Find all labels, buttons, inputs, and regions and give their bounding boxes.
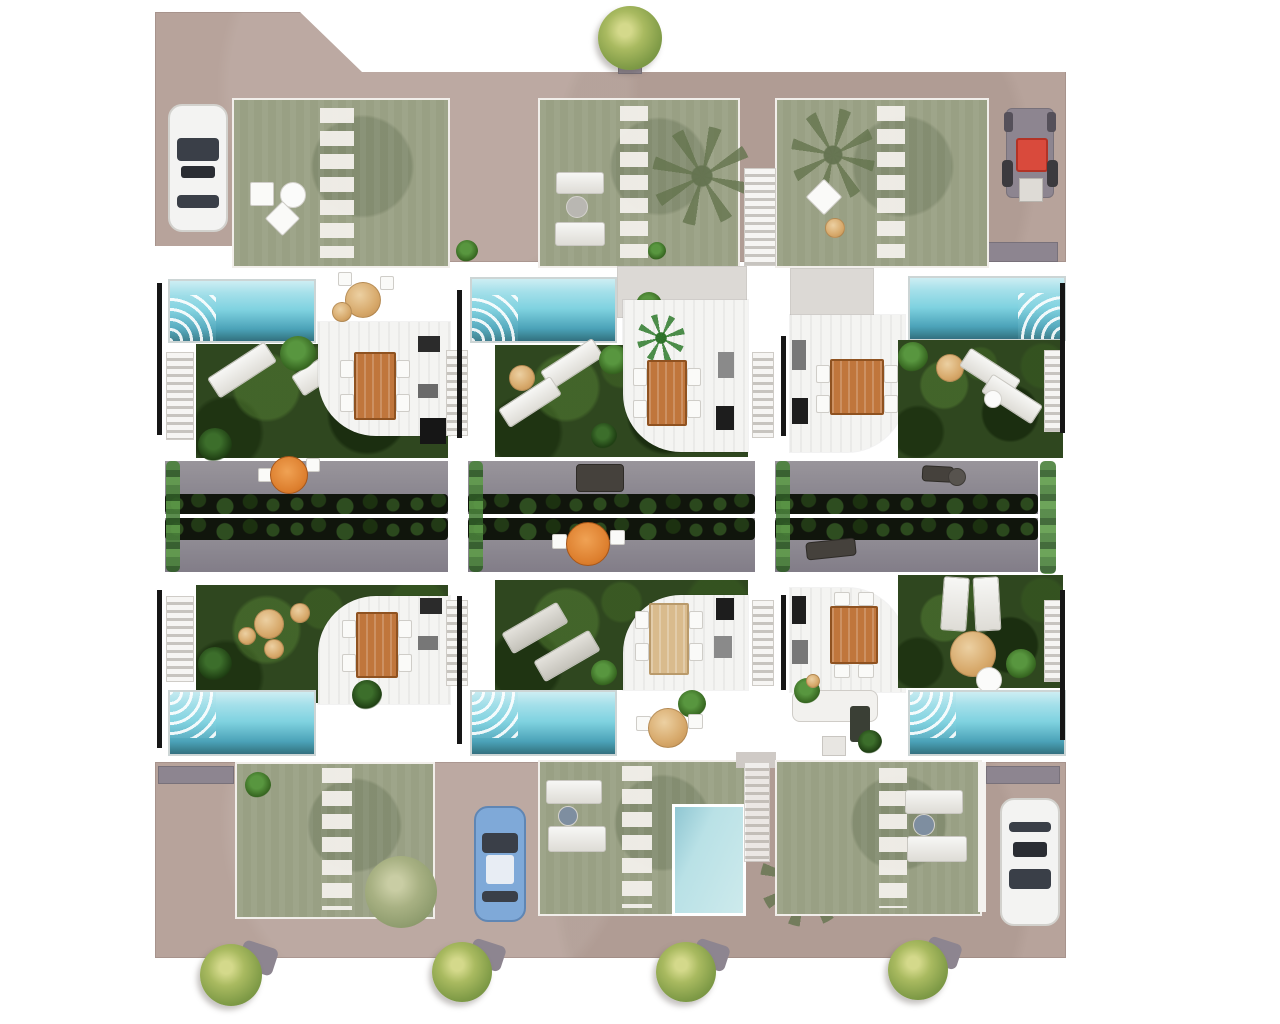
dining-table bbox=[649, 603, 689, 675]
chair bbox=[633, 400, 647, 418]
chair bbox=[687, 368, 701, 386]
boundary-wall bbox=[1060, 283, 1065, 433]
kitchen-block bbox=[418, 384, 438, 398]
white-car-bottom bbox=[1000, 798, 1060, 926]
chair bbox=[689, 611, 703, 629]
planter-strip bbox=[469, 461, 483, 572]
tractor-implement bbox=[1019, 178, 1043, 202]
roof-garden-plot-5 bbox=[538, 760, 746, 916]
sun-lounger bbox=[546, 780, 602, 804]
roof-terrace-lower-2 bbox=[468, 518, 755, 572]
chair bbox=[635, 611, 649, 629]
pouf-seat bbox=[264, 639, 284, 659]
kitchen-block bbox=[420, 598, 442, 614]
stepping-stones-path bbox=[322, 768, 352, 910]
stepping-stones-path bbox=[620, 106, 648, 258]
tractor bbox=[1000, 98, 1060, 208]
tree-top bbox=[598, 6, 662, 70]
chair bbox=[884, 395, 898, 413]
dining-table bbox=[356, 612, 398, 678]
car-windshield bbox=[1009, 869, 1052, 889]
street-tree bbox=[200, 944, 262, 1006]
roof-garden-plot-4 bbox=[235, 762, 435, 919]
kitchen-block bbox=[418, 336, 440, 352]
tractor-cab bbox=[1016, 138, 1048, 172]
dining-table bbox=[830, 606, 878, 664]
outdoor-sofa bbox=[576, 464, 624, 492]
party-wall bbox=[457, 290, 462, 438]
kitchen-block bbox=[792, 340, 806, 370]
entry-stairs bbox=[166, 352, 194, 440]
patio-plant bbox=[352, 680, 382, 710]
roof-garden-plot-3 bbox=[775, 98, 989, 268]
chair bbox=[834, 664, 850, 678]
kitchen-block bbox=[418, 636, 438, 650]
palm-tree bbox=[652, 126, 752, 226]
sun-lounger bbox=[207, 341, 277, 398]
sun-lounger bbox=[555, 222, 605, 246]
pool-steps bbox=[472, 295, 518, 341]
white-car-top bbox=[168, 104, 228, 232]
entry-stairs bbox=[166, 596, 194, 682]
kitchen-block bbox=[420, 418, 446, 444]
garden-plant bbox=[591, 660, 617, 686]
patio-plant bbox=[858, 730, 882, 754]
chair bbox=[610, 530, 625, 545]
garden-plant bbox=[1006, 649, 1036, 679]
chair bbox=[396, 394, 410, 412]
tractor-wheel bbox=[1002, 160, 1013, 187]
car-rear-window bbox=[177, 195, 220, 207]
kitchen-block bbox=[792, 398, 808, 424]
villa-4-pool bbox=[168, 690, 316, 756]
pouf-seat bbox=[238, 627, 256, 645]
chair bbox=[398, 620, 412, 638]
street-tree bbox=[656, 942, 716, 1002]
car-sunroof bbox=[1013, 842, 1047, 857]
sun-lounger bbox=[973, 576, 1002, 631]
kitchen-block bbox=[792, 640, 808, 664]
roof-garden-plot-6 bbox=[775, 760, 982, 916]
garden-tree bbox=[365, 856, 437, 928]
garden-plant bbox=[898, 342, 928, 372]
roof-terrace-lower-1 bbox=[165, 518, 448, 572]
kitchen-block bbox=[792, 596, 806, 624]
pouf-seat bbox=[290, 603, 310, 623]
chair bbox=[338, 272, 352, 286]
round-table bbox=[936, 354, 964, 382]
kitchen-block bbox=[716, 598, 734, 620]
chair bbox=[816, 395, 830, 413]
villa-3-pool bbox=[908, 276, 1066, 341]
chair bbox=[552, 534, 567, 549]
car-windshield bbox=[482, 833, 518, 853]
side-patio bbox=[790, 268, 874, 318]
dining-table bbox=[354, 352, 396, 420]
patio-seat bbox=[250, 182, 274, 206]
car-windshield bbox=[177, 138, 220, 160]
chair bbox=[688, 714, 703, 729]
hedge bbox=[165, 494, 448, 514]
sun-lounger bbox=[548, 826, 606, 852]
small-pool bbox=[672, 804, 746, 916]
sun-lounger bbox=[907, 836, 967, 862]
roof-garden-plot-2 bbox=[538, 98, 740, 268]
boundary-wall bbox=[157, 590, 162, 748]
tractor-wheel bbox=[1047, 160, 1058, 187]
round-table bbox=[825, 218, 845, 238]
dining-table bbox=[830, 359, 884, 415]
villa-2-pool bbox=[470, 277, 617, 343]
stepping-stones-path bbox=[879, 768, 907, 908]
flower-pot bbox=[806, 674, 820, 688]
storage-roof-left bbox=[158, 766, 234, 784]
stepping-stones-path bbox=[877, 106, 905, 258]
chair bbox=[858, 592, 874, 606]
terrace-palm-plant bbox=[637, 314, 685, 362]
pouf-seat bbox=[254, 609, 284, 639]
chair bbox=[342, 620, 356, 638]
storage-roof-right bbox=[986, 766, 1060, 784]
sun-lounger bbox=[905, 790, 963, 814]
parasol-table bbox=[566, 522, 610, 566]
stepping-stones-path bbox=[320, 108, 354, 258]
villa-3-garden bbox=[898, 340, 1063, 458]
parasol-table bbox=[270, 456, 308, 494]
party-wall bbox=[781, 595, 786, 690]
bush bbox=[648, 242, 666, 260]
manhole bbox=[948, 468, 966, 486]
kitchen-block bbox=[718, 352, 734, 378]
sun-lounger bbox=[556, 172, 604, 194]
hedge bbox=[775, 518, 1038, 540]
car-roof bbox=[486, 855, 515, 884]
car-sunroof bbox=[181, 166, 215, 178]
chair bbox=[816, 365, 830, 383]
villa-5-pool bbox=[470, 690, 617, 756]
small-table bbox=[822, 736, 846, 756]
planter-strip bbox=[166, 461, 180, 572]
hedge bbox=[165, 518, 448, 540]
chair bbox=[380, 276, 394, 290]
paved-patch-top-right bbox=[988, 242, 1058, 262]
chair bbox=[342, 654, 356, 672]
villa-6-garden bbox=[898, 575, 1063, 688]
chair bbox=[398, 654, 412, 672]
chair bbox=[396, 360, 410, 378]
roof-garden-plot-1 bbox=[232, 98, 450, 268]
pool-steps bbox=[1018, 293, 1064, 339]
round-table bbox=[558, 806, 578, 826]
chair bbox=[689, 643, 703, 661]
tractor-wheel bbox=[1047, 112, 1056, 132]
party-wall bbox=[457, 596, 462, 744]
pool-steps bbox=[472, 692, 518, 738]
plot-divider bbox=[978, 762, 986, 912]
hedge bbox=[775, 494, 1038, 514]
chair bbox=[306, 458, 320, 472]
car-rear-window bbox=[482, 891, 518, 902]
bush bbox=[245, 772, 271, 798]
chair bbox=[687, 400, 701, 418]
pool-steps bbox=[170, 692, 216, 738]
garden-plant bbox=[591, 423, 617, 449]
divider-stairs bbox=[752, 352, 774, 438]
kitchen-block bbox=[714, 636, 732, 658]
site-plan bbox=[0, 0, 1280, 1024]
round-table bbox=[648, 708, 688, 748]
party-wall bbox=[781, 336, 786, 436]
boundary-wall bbox=[1060, 590, 1065, 740]
blue-car bbox=[474, 806, 526, 922]
street-tree bbox=[888, 940, 948, 1000]
kitchen-block bbox=[716, 406, 734, 430]
walkway-steps bbox=[744, 762, 770, 862]
round-table bbox=[913, 814, 935, 836]
chair bbox=[884, 365, 898, 383]
street-tree bbox=[432, 942, 492, 1002]
tractor-wheel bbox=[1004, 112, 1013, 132]
walkway-front-parking bbox=[155, 246, 233, 262]
patio-round-seat bbox=[566, 196, 588, 218]
stairs-between-plots bbox=[744, 168, 776, 266]
chair bbox=[633, 368, 647, 386]
dining-table bbox=[647, 360, 687, 426]
boundary-wall bbox=[157, 283, 162, 435]
roof-terrace-upper-3 bbox=[775, 461, 1038, 514]
pool-steps bbox=[910, 692, 956, 738]
garden-plant bbox=[198, 428, 232, 462]
chair bbox=[340, 394, 354, 412]
garden-plant bbox=[198, 647, 232, 681]
chair bbox=[858, 664, 874, 678]
divider-stairs bbox=[752, 600, 774, 686]
bush bbox=[456, 240, 478, 262]
villa-1-pool bbox=[168, 279, 316, 343]
sun-lounger bbox=[940, 576, 970, 632]
planter-strip bbox=[1040, 461, 1056, 574]
pool-steps bbox=[170, 295, 216, 341]
planter-strip bbox=[776, 461, 790, 572]
round-seat bbox=[332, 302, 352, 322]
side-table bbox=[984, 390, 1002, 408]
chair bbox=[834, 592, 850, 606]
villa-3-terrace bbox=[790, 315, 905, 452]
villa-6-pool bbox=[908, 690, 1066, 756]
stepping-stones-path bbox=[622, 766, 652, 908]
garden-plant bbox=[280, 336, 316, 372]
car-rear-window bbox=[1009, 822, 1052, 832]
chair bbox=[635, 643, 649, 661]
chair bbox=[340, 360, 354, 378]
hedge bbox=[468, 494, 755, 514]
